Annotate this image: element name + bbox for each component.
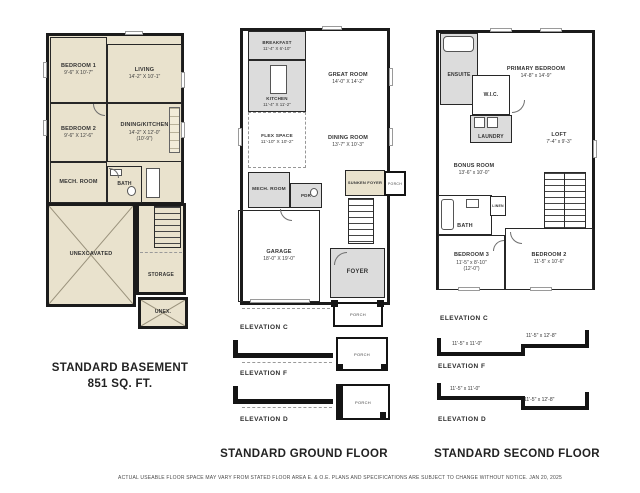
elevation-label: ELEVATION C: [440, 315, 488, 322]
room-bonus-room: BONUS ROOM 13'-6" x 10'-0": [438, 156, 510, 184]
elevation-label: ELEVATION D: [438, 416, 486, 423]
second-floor-plan: ENSUITE W.I.C. PRIMARY BEDROOM 14'-8" x …: [0, 0, 640, 493]
room-dim-label: (12'-0"): [463, 266, 479, 273]
room-name-label: BEDROOM 3: [454, 252, 489, 259]
window: [540, 28, 562, 32]
room-dim-label: 13'-6" x 10'-0": [459, 170, 490, 177]
wall-segment: [585, 392, 589, 410]
room-name-label: LINEN: [492, 204, 504, 209]
room-name-label: BONUS ROOM: [454, 163, 495, 170]
second-title: STANDARD SECOND FLOOR: [428, 446, 606, 462]
elevation-label: ELEVATION F: [438, 363, 486, 370]
elevation-dim: 11'-5" x 11'-0": [450, 386, 480, 392]
room-name-label: LAUNDRY: [478, 134, 504, 141]
wall-segment: [437, 396, 521, 400]
wall-segment: [437, 352, 521, 356]
washer-fixture: [474, 117, 485, 128]
room-name-label: LOFT: [551, 132, 566, 139]
room-name-label: BEDROOM 2: [531, 252, 566, 259]
room-name-label: ENSUITE: [447, 72, 470, 79]
second-stairs: [544, 172, 586, 230]
tub-fixture: [441, 199, 454, 230]
plan-title-line: STANDARD SECOND FLOOR: [428, 446, 606, 462]
room-name-label: PRIMARY BEDROOM: [507, 66, 565, 73]
room-name-label: BATH: [457, 223, 473, 230]
elevation-dim: 11'-5" x 12'-8": [524, 397, 554, 403]
elevation-dim: 11'-5" x 12'-8": [526, 333, 556, 339]
sink-fixture: [466, 199, 479, 208]
room-primary-bedroom: PRIMARY BEDROOM 14'-8" x 14'-9": [480, 40, 592, 106]
window: [490, 28, 512, 32]
floor-plan-sheet: BEDROOM 1 9'-6" X 10'-7" LIVING 14'-2" X…: [0, 0, 640, 493]
stair-rail: [564, 173, 565, 229]
wall-segment: [521, 344, 589, 348]
window: [530, 287, 552, 291]
room-dim-label: 7'-4" x 9'-3": [546, 139, 571, 146]
wall-segment: [521, 406, 589, 410]
tub-fixture: [443, 36, 474, 52]
room-dim-label: 14'-8" x 14'-9": [521, 73, 552, 80]
disclaimer-text: ACTUAL USEABLE FLOOR SPACE MAY VARY FROM…: [40, 475, 640, 481]
room-linen: LINEN: [490, 196, 506, 216]
elevation-dim: 11'-5" x 11'-0": [452, 341, 482, 347]
room-dim-label: 11'-5" x 10'-6": [534, 259, 564, 266]
dryer-fixture: [487, 117, 498, 128]
window: [458, 287, 480, 291]
room-loft: LOFT 7'-4" x 9'-3": [528, 126, 590, 152]
wall-segment: [585, 330, 589, 348]
window: [593, 140, 597, 158]
